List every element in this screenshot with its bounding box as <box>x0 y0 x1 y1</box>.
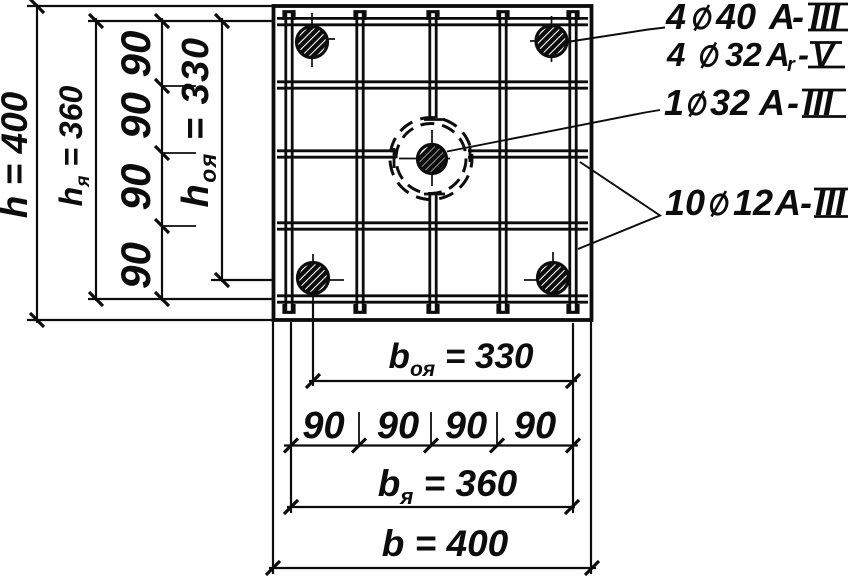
svg-text:h = 400: h = 400 <box>0 91 35 218</box>
svg-text:r: r <box>787 54 796 76</box>
svg-text:-: - <box>798 36 809 73</box>
svg-text:90: 90 <box>445 405 487 447</box>
svg-text:-: - <box>787 82 799 123</box>
svg-text:90: 90 <box>112 92 159 139</box>
svg-text:III: III <box>810 0 841 37</box>
svg-text:A: A <box>768 0 795 37</box>
svg-text:90: 90 <box>377 405 419 447</box>
svg-text:-: - <box>800 182 812 223</box>
svg-text:32: 32 <box>725 36 762 73</box>
svg-text:10: 10 <box>665 182 705 223</box>
svg-text:32: 32 <box>710 82 750 123</box>
svg-text:4: 4 <box>665 0 686 37</box>
svg-text:A: A <box>774 182 801 223</box>
svg-text:90: 90 <box>112 164 159 211</box>
svg-text:90: 90 <box>112 31 159 78</box>
svg-text:90: 90 <box>302 405 344 447</box>
svg-text:1: 1 <box>664 82 684 123</box>
svg-text:hя = 360: hя = 360 <box>53 85 94 206</box>
svg-text:4: 4 <box>666 36 685 73</box>
svg-text:-: - <box>792 0 804 37</box>
svg-text:bя = 360: bя = 360 <box>378 463 518 509</box>
svg-text:12: 12 <box>733 182 773 223</box>
svg-text:90: 90 <box>514 405 556 447</box>
svg-text:A: A <box>758 82 785 123</box>
svg-text:b = 400: b = 400 <box>382 523 509 564</box>
svg-text:40: 40 <box>715 0 756 37</box>
svg-text:90: 90 <box>112 242 159 289</box>
